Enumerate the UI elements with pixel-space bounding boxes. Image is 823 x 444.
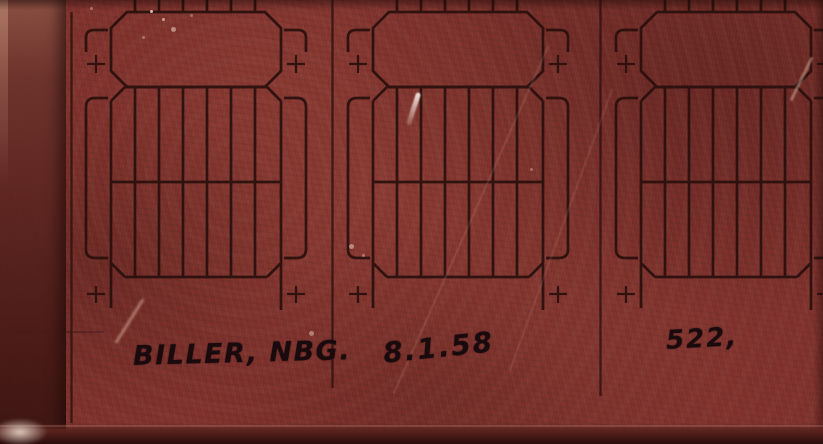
film-top-edge [0, 0, 823, 10]
film-left-edge [0, 0, 66, 444]
schematic-linework [0, 0, 823, 444]
handwritten-sheet-number: 522, [665, 322, 739, 356]
film-left-edge-highlight [0, 0, 8, 186]
film-photograph: BILLER, NBG. 8.1.58 522, [0, 0, 823, 444]
film-right-edge [813, 0, 823, 444]
film-bottom-edge [0, 423, 823, 444]
handwritten-author-label: BILLER, NBG. [133, 335, 352, 372]
